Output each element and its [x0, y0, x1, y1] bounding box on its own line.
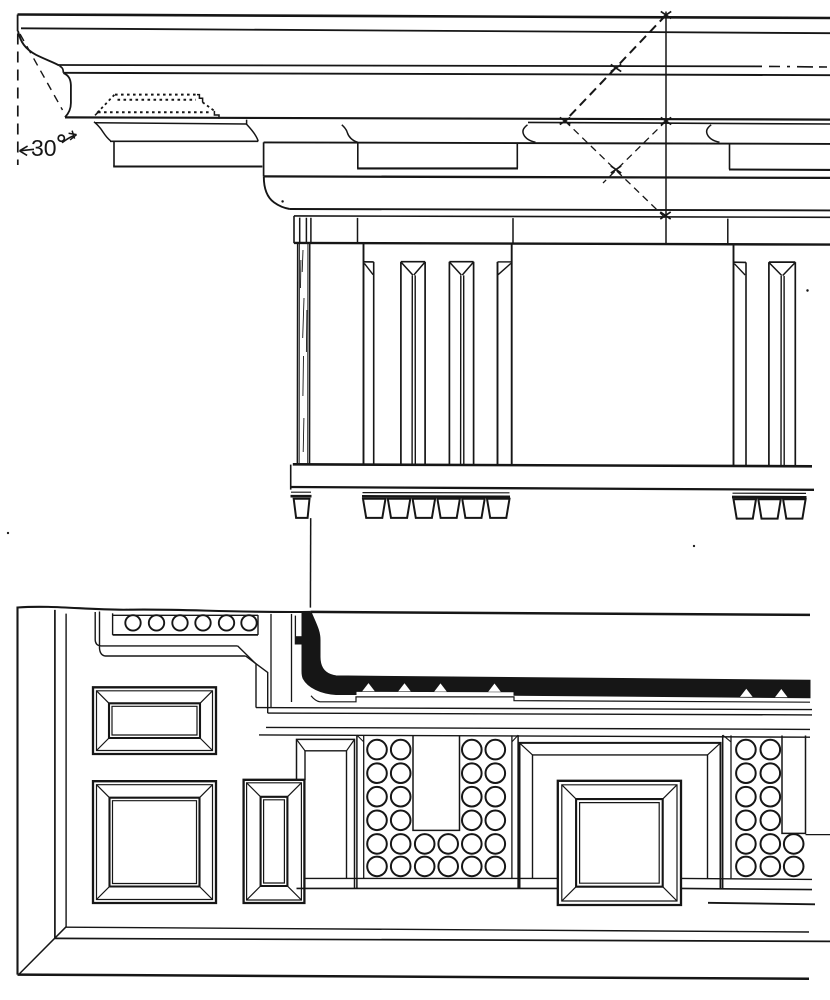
svg-text:30: 30 — [31, 135, 57, 161]
